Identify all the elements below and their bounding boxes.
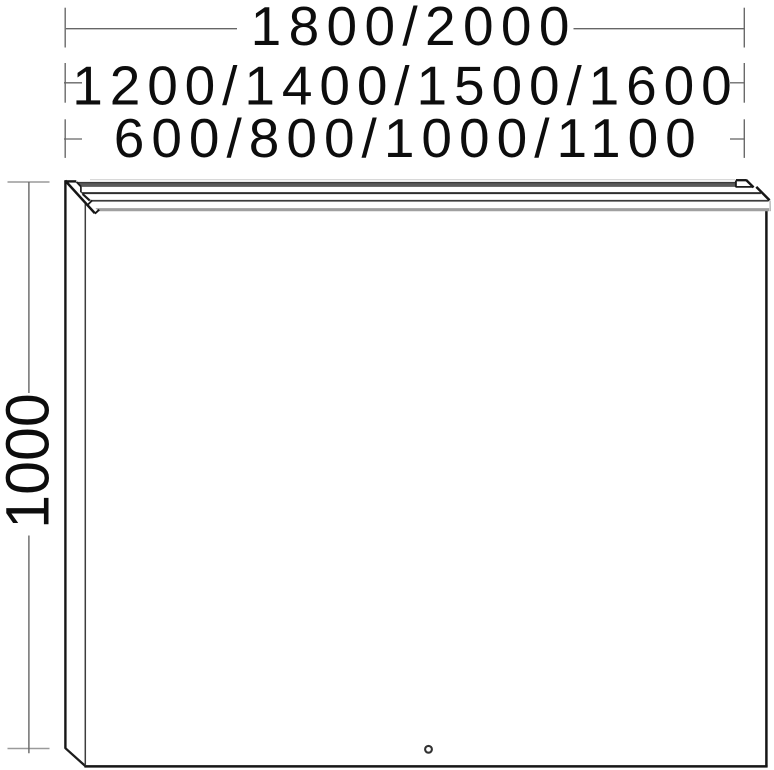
svg-text:1800/2000: 1800/2000 (251, 0, 577, 57)
svg-text:1000: 1000 (0, 393, 62, 529)
svg-text:600/800/1000/1100: 600/800/1000/1100 (114, 107, 703, 169)
